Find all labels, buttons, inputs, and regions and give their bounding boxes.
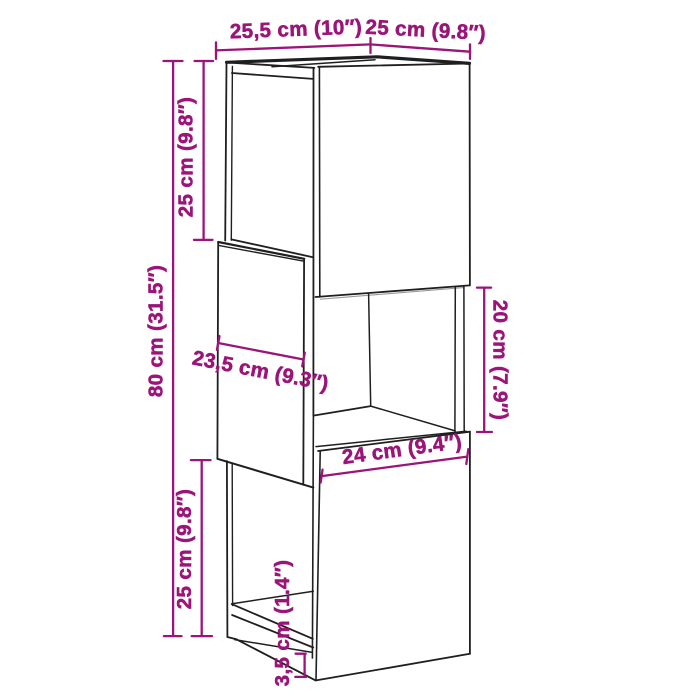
svg-text:20 cm (7.9″): 20 cm (7.9″) <box>489 300 512 421</box>
svg-text:25 cm (9.8″): 25 cm (9.8″) <box>174 97 197 218</box>
svg-text:25 cm (9.8″): 25 cm (9.8″) <box>173 489 196 610</box>
svg-text:3,5 cm (1.4″): 3,5 cm (1.4″) <box>271 560 294 687</box>
svg-text:80 cm (31.5″): 80 cm (31.5″) <box>145 265 168 397</box>
